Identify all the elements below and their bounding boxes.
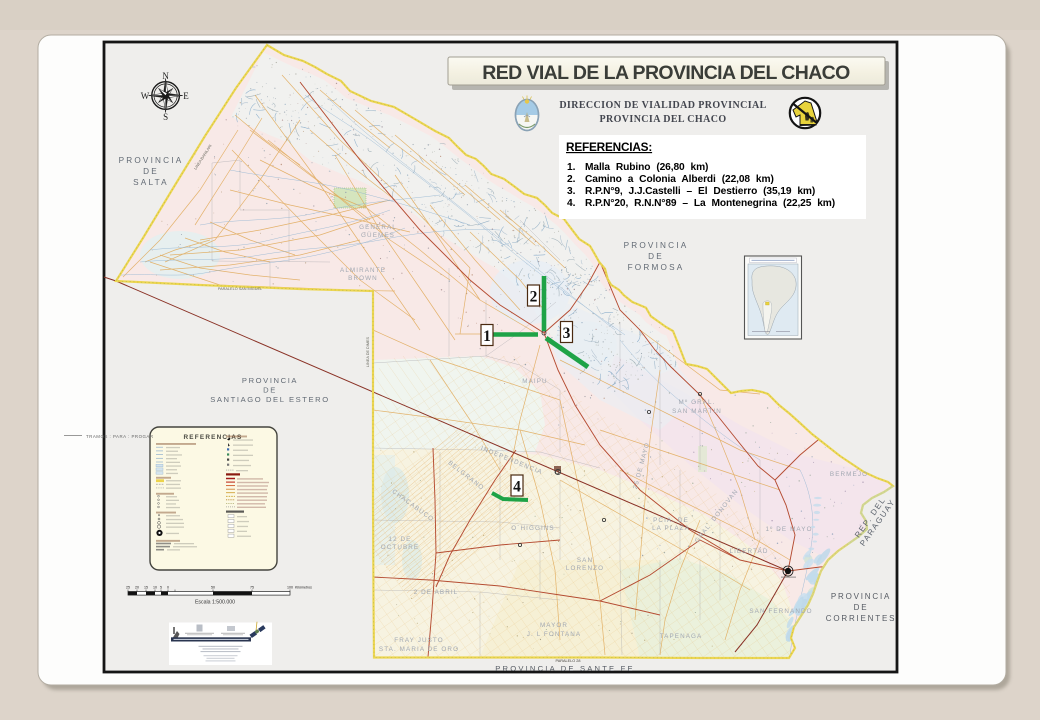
svg-text:15: 15 — [144, 586, 148, 590]
svg-text:SALTA: SALTA — [133, 178, 169, 187]
svg-text:W: W — [141, 91, 150, 101]
svg-text:E: E — [183, 91, 189, 101]
svg-text:0: 0 — [167, 586, 169, 590]
svg-text:LIBERTAD: LIBERTAD — [729, 548, 768, 555]
svg-text:5: 5 — [160, 586, 162, 590]
svg-text:LA PLAZA: LA PLAZA — [652, 525, 690, 532]
svg-text:PROVINCIA: PROVINCIA — [831, 592, 891, 601]
svg-text:REFERENCIAS:: REFERENCIAS: — [566, 140, 652, 154]
svg-text:3.: 3. — [567, 186, 576, 197]
svg-text:75: 75 — [250, 586, 254, 590]
svg-text:PCIA. DE: PCIA. DE — [653, 517, 689, 524]
svg-text:S: S — [163, 112, 168, 122]
svg-text:DE: DE — [263, 386, 277, 395]
svg-text:Malla Rubino (26,80 km): Malla Rubino (26,80 km) — [585, 162, 708, 173]
svg-text:R.P.N°20, R.N.N°89 – La Mo: R.P.N°20, R.N.N°89 – La Montenegrina (22… — [585, 198, 835, 209]
svg-text:Kilómetros: Kilómetros — [295, 586, 312, 590]
svg-text:O´HIGGINS: O´HIGGINS — [511, 525, 554, 532]
svg-text:PROVINCIA: PROVINCIA — [119, 156, 184, 165]
svg-text:DE: DE — [143, 167, 159, 176]
svg-text:OCTUBRE: OCTUBRE — [381, 544, 420, 551]
svg-text:RED VIAL DE LA PROVINCIA DEL C: RED VIAL DE LA PROVINCIA DEL CHACO — [482, 62, 850, 84]
svg-text:PROVINCIA DE SANTE FE: PROVINCIA DE SANTE FE — [495, 664, 634, 673]
svg-text:STA. MARIA DE ORO: STA. MARIA DE ORO — [379, 646, 459, 653]
svg-text:Camino a Colonia Alberdi (2: Camino a Colonia Alberdi (22,08 km) — [585, 174, 774, 185]
svg-text:3: 3 — [563, 325, 571, 342]
svg-text:1º DE MAYO: 1º DE MAYO — [765, 526, 812, 533]
svg-text:DE: DE — [648, 252, 664, 261]
svg-text:SAN: SAN — [577, 557, 593, 564]
svg-text:DIRECCION DE VIALIDAD PROVINCI: DIRECCION DE VIALIDAD PROVINCIAL — [559, 100, 766, 111]
svg-text:CORRIENTES: CORRIENTES — [826, 614, 896, 623]
svg-text:Escala 1:500.000: Escala 1:500.000 — [195, 600, 235, 606]
svg-text:PROVINCIA: PROVINCIA — [242, 376, 298, 385]
svg-text:2.: 2. — [567, 174, 576, 185]
svg-text:PARALELO SAN MIGUEL: PARALELO SAN MIGUEL — [218, 287, 262, 291]
svg-text:100: 100 — [287, 586, 293, 590]
svg-text:10: 10 — [153, 586, 157, 590]
svg-text:ALMIRANTE: ALMIRANTE — [340, 267, 386, 274]
svg-text:GÜEMES: GÜEMES — [361, 231, 395, 239]
svg-text:4: 4 — [513, 479, 521, 496]
svg-text:2: 2 — [530, 289, 538, 306]
svg-text:SAN FERNANDO: SAN FERNANDO — [749, 608, 812, 615]
svg-text:4.: 4. — [567, 198, 576, 209]
svg-text:FORMOSA: FORMOSA — [628, 263, 685, 272]
svg-text:Mº GRAL.: Mº GRAL. — [679, 399, 716, 406]
svg-text:12 DE: 12 DE — [388, 536, 411, 543]
svg-text:20: 20 — [135, 586, 139, 590]
svg-text:J. L FONTANA: J. L FONTANA — [527, 631, 581, 638]
svg-text:TAPENAGA: TAPENAGA — [660, 633, 703, 640]
svg-text:1: 1 — [483, 328, 491, 345]
svg-text:PROVINCIA DEL CHACO: PROVINCIA DEL CHACO — [599, 114, 726, 125]
svg-text:TRAMOS : PARA : PROGAR: TRAMOS : PARA : PROGAR — [86, 434, 154, 439]
svg-text:SAN MARTIN: SAN MARTIN — [672, 408, 722, 415]
svg-text:1.: 1. — [567, 162, 576, 173]
svg-text:BROWN: BROWN — [348, 275, 378, 282]
svg-text:PROVINCIA: PROVINCIA — [624, 241, 689, 250]
svg-text:25: 25 — [126, 586, 130, 590]
svg-text:BERMEJO: BERMEJO — [830, 471, 868, 478]
svg-text:SANTIAGO DEL ESTERO: SANTIAGO DEL ESTERO — [210, 395, 330, 404]
svg-text:50: 50 — [211, 586, 215, 590]
svg-text:GENERAL: GENERAL — [359, 224, 397, 231]
svg-text:LORENZO: LORENZO — [566, 565, 604, 572]
svg-text:2 DE ABRIL: 2 DE ABRIL — [414, 589, 459, 596]
svg-text:MAIPU: MAIPU — [522, 378, 547, 385]
svg-text:FRAY JUSTO: FRAY JUSTO — [394, 637, 444, 644]
svg-text:N: N — [162, 71, 169, 81]
svg-text:DE: DE — [854, 603, 869, 612]
svg-text:LINEA DE DIMES: LINEA DE DIMES — [366, 336, 370, 367]
svg-text:R.P.N°9, J.J.Castelli – El: R.P.N°9, J.J.Castelli – El Destierro (35… — [585, 186, 815, 197]
svg-text:MAYOR: MAYOR — [540, 622, 568, 629]
svg-text:PARALELO 28: PARALELO 28 — [555, 659, 580, 663]
